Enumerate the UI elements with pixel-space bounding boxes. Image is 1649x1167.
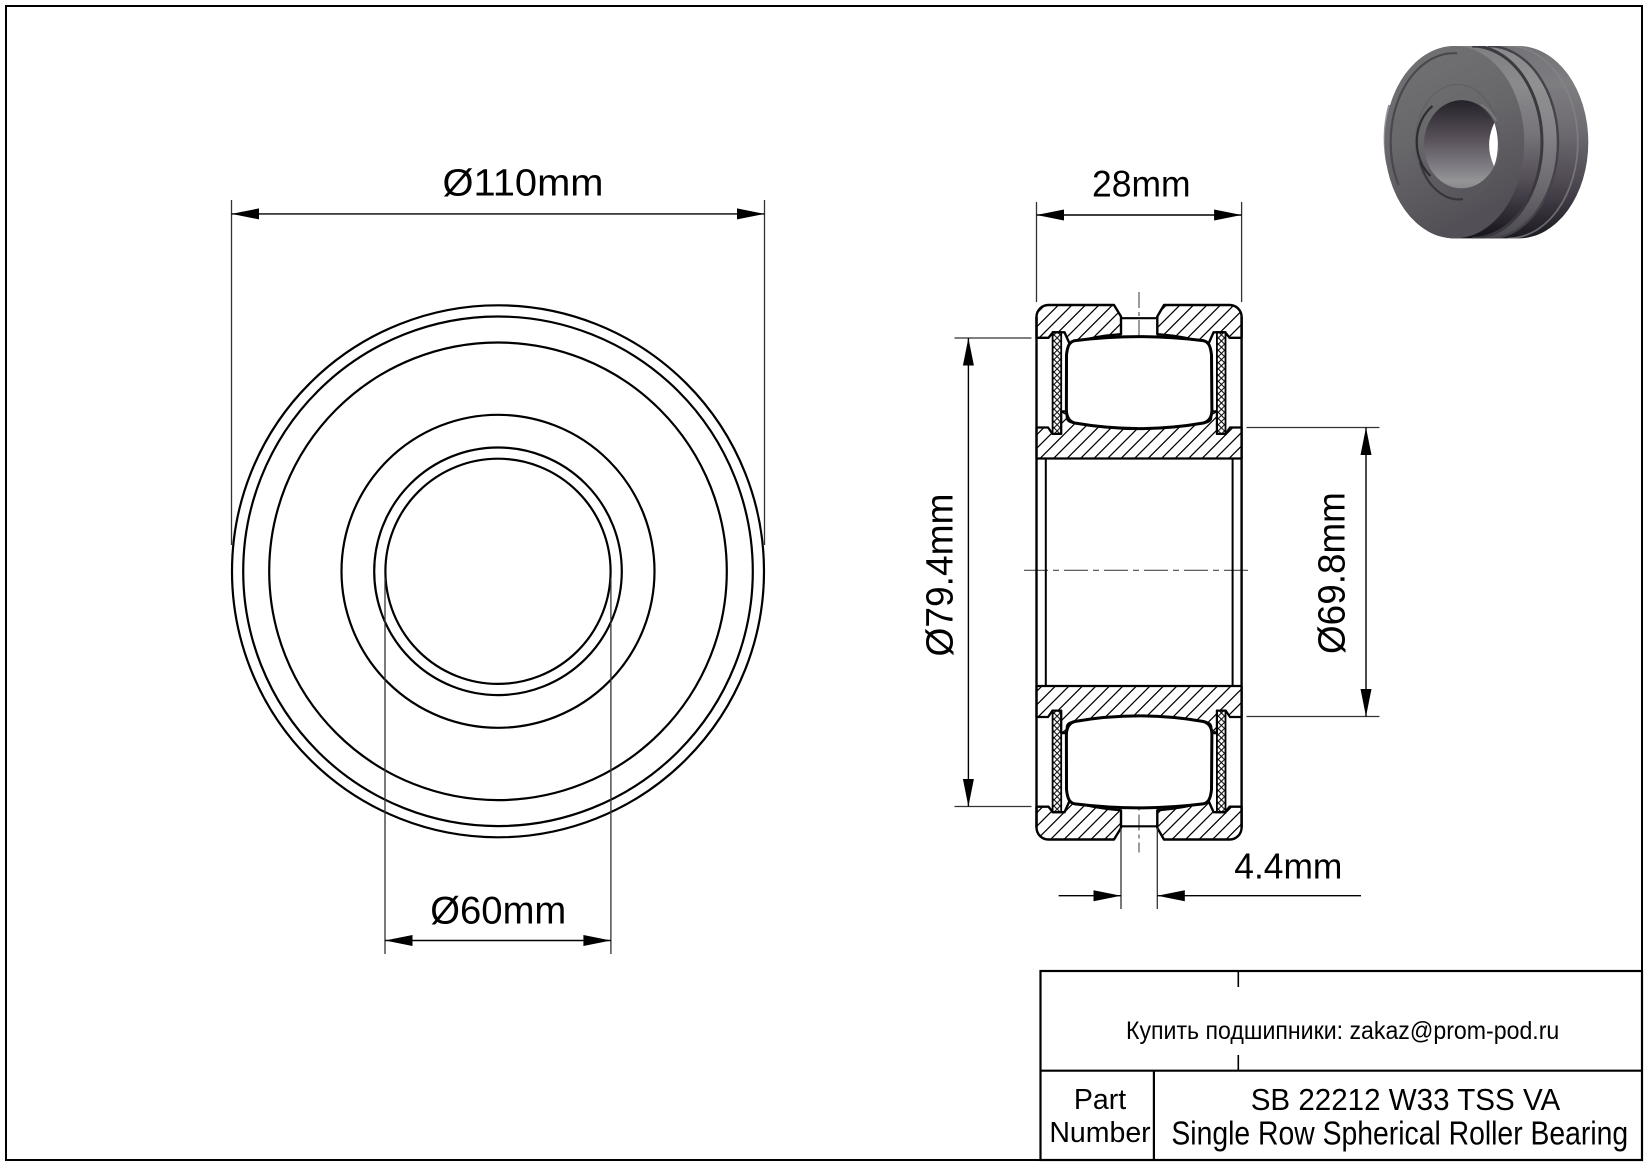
svg-text:Ø79.4mm: Ø79.4mm — [920, 494, 962, 657]
svg-text:Ø69.8mm: Ø69.8mm — [1312, 492, 1354, 654]
svg-text:SB 22212 W33 TSS VA: SB 22212 W33 TSS VA — [1251, 1083, 1561, 1117]
svg-text:Ø60mm: Ø60mm — [430, 889, 566, 932]
svg-text:Single Row Spherical Roller Be: Single Row Spherical Roller Bearing — [1171, 1116, 1628, 1153]
svg-text:Number: Number — [1049, 1117, 1151, 1149]
svg-text:4.4mm: 4.4mm — [1234, 846, 1342, 887]
svg-text:Part: Part — [1074, 1084, 1126, 1116]
svg-text:Купить подшипники: zakaz@prom-: Купить подшипники: zakaz@prom-pod.ru — [1126, 1017, 1559, 1045]
svg-text:28mm: 28mm — [1092, 164, 1191, 205]
svg-text:Ø110mm: Ø110mm — [443, 162, 604, 204]
